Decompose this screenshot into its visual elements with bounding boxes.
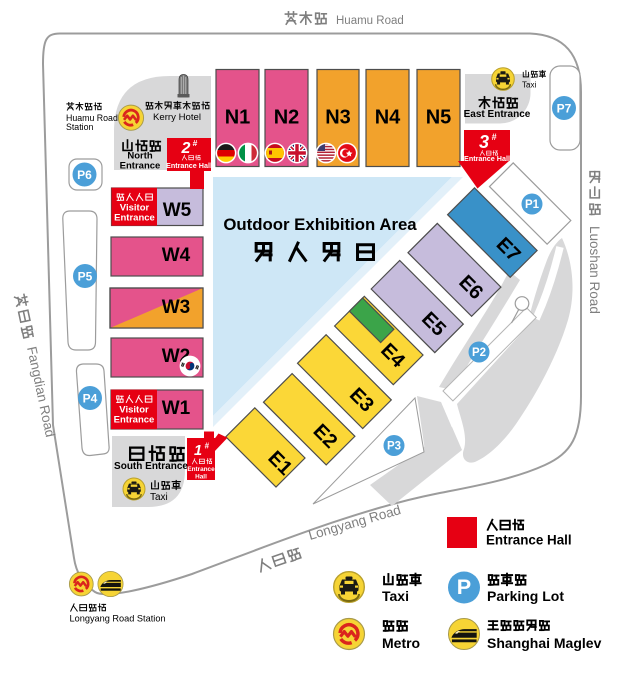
svg-text:Entrance: Entrance <box>120 161 161 172</box>
svg-text:Shanghai Maglev: Shanghai Maglev <box>487 635 602 651</box>
svg-text:Entrance: Entrance <box>114 415 155 426</box>
svg-text:P1: P1 <box>525 199 540 211</box>
svg-text:N3: N3 <box>325 107 351 129</box>
svg-text:Entrance Hall: Entrance Hall <box>166 161 212 170</box>
svg-text:Longyang Road Station: Longyang Road Station <box>70 614 166 624</box>
svg-text:2: 2 <box>181 140 191 157</box>
svg-text:P4: P4 <box>83 392 98 406</box>
svg-text:N5: N5 <box>426 107 452 129</box>
svg-text:Entrance Hall: Entrance Hall <box>464 154 510 163</box>
svg-text:Entrance Hall: Entrance Hall <box>486 533 572 548</box>
svg-text:P2: P2 <box>472 347 486 359</box>
svg-text:P3: P3 <box>387 441 401 453</box>
svg-text:P6: P6 <box>77 168 92 182</box>
svg-text:#: # <box>205 442 210 451</box>
svg-text:Taxi: Taxi <box>522 81 536 90</box>
svg-text:East Entrance: East Entrance <box>464 109 531 120</box>
svg-text:South Entrance: South Entrance <box>114 461 188 472</box>
svg-text:#: # <box>193 138 198 148</box>
svg-text:P: P <box>457 574 471 599</box>
svg-text:Taxi: Taxi <box>150 492 168 503</box>
svg-text:Kerry Hotel: Kerry Hotel <box>153 112 201 123</box>
svg-text:Luoshan Road: Luoshan Road <box>587 226 602 314</box>
svg-text:P7: P7 <box>557 102 572 116</box>
svg-text:#: # <box>492 132 497 142</box>
svg-text:P5: P5 <box>78 270 93 284</box>
svg-text:Outdoor Exhibition Area: Outdoor Exhibition Area <box>223 215 417 234</box>
svg-text:Taxi: Taxi <box>382 588 409 604</box>
svg-text:Huamu Road: Huamu Road <box>336 15 404 27</box>
svg-text:Longyang Road: Longyang Road <box>307 502 403 543</box>
svg-text:W4: W4 <box>162 245 191 266</box>
svg-text:Entrance: Entrance <box>187 466 215 473</box>
svg-text:Metro: Metro <box>382 635 420 651</box>
svg-text:Station: Station <box>66 122 93 132</box>
svg-text:Hall: Hall <box>195 474 207 481</box>
svg-text:Entrance: Entrance <box>114 213 155 224</box>
svg-text:3: 3 <box>479 132 489 152</box>
svg-text:W1: W1 <box>162 398 191 419</box>
svg-text:W5: W5 <box>163 200 192 221</box>
svg-text:N4: N4 <box>375 107 401 129</box>
svg-text:W3: W3 <box>162 297 191 318</box>
svg-text:Parking Lot: Parking Lot <box>487 588 564 604</box>
svg-text:N1: N1 <box>225 107 251 129</box>
svg-text:N2: N2 <box>274 107 300 129</box>
svg-text:1: 1 <box>194 443 202 459</box>
